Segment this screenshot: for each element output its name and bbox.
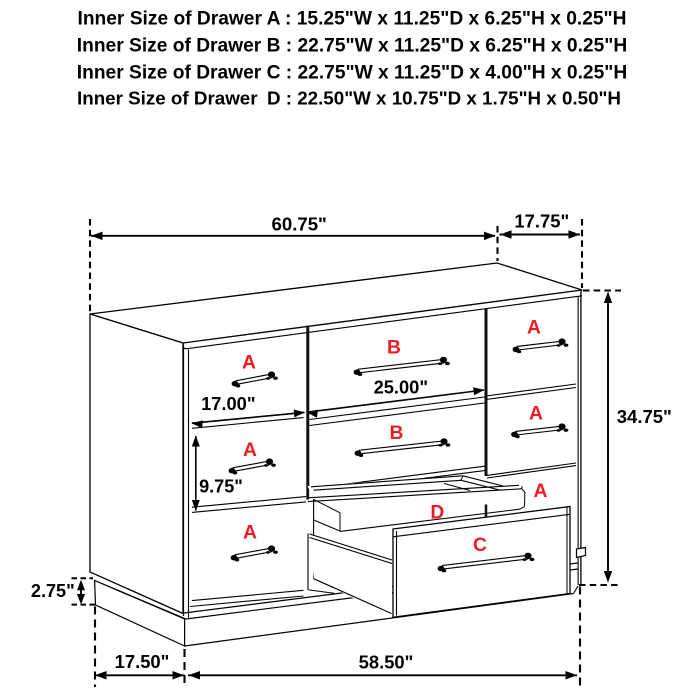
svg-text:58.50": 58.50" [359, 652, 414, 673]
svg-text:17.00": 17.00" [201, 393, 255, 414]
svg-text:D: D [430, 503, 444, 524]
svg-text:A: A [243, 440, 257, 461]
svg-text:B: B [387, 338, 401, 359]
svg-text:25.00": 25.00" [374, 376, 428, 397]
svg-text:Inner Size of Drawer C : 22.75: Inner Size of Drawer C : 22.75"W x 11.25… [77, 63, 627, 84]
svg-text:A: A [529, 404, 543, 425]
svg-text:Inner Size of Drawer D : 22.50: Inner Size of Drawer D : 22.50"W x 10.75… [77, 88, 621, 109]
svg-text:A: A [534, 481, 548, 502]
svg-text:17.75": 17.75" [514, 211, 569, 232]
svg-text:34.75": 34.75" [617, 406, 672, 427]
svg-text:C: C [473, 535, 487, 556]
svg-text:Inner Size of Drawer A : 15.25: Inner Size of Drawer A : 15.25"W x 11.25… [77, 9, 626, 30]
svg-text:2.75": 2.75" [31, 581, 75, 601]
svg-text:A: A [243, 523, 257, 544]
svg-text:A: A [242, 353, 256, 374]
svg-text:A: A [527, 318, 541, 339]
svg-text:17.50": 17.50" [115, 651, 170, 672]
svg-text:B: B [390, 423, 404, 444]
svg-text:9.75": 9.75" [199, 477, 243, 497]
svg-text:60.75": 60.75" [272, 214, 327, 235]
svg-text:Inner Size of Drawer B : 22.75: Inner Size of Drawer B : 22.75"W x 11.25… [77, 36, 627, 57]
